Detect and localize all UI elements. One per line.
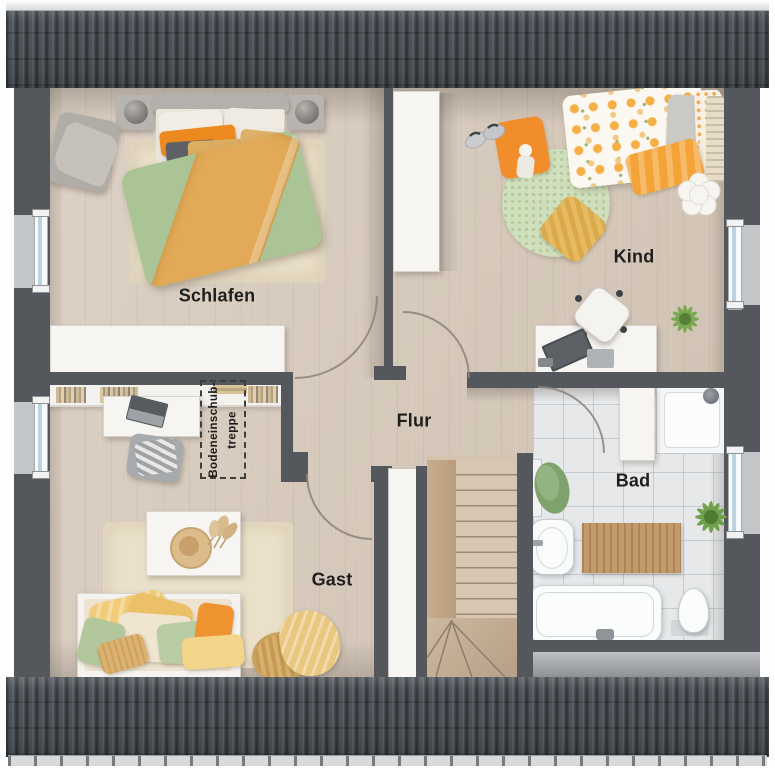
wall-stair-left [374, 466, 388, 677]
room-label-schlafen: Schlafen [179, 286, 256, 307]
attic-hatch-annotation: Bodeneinschub- treppe [200, 380, 246, 479]
sideboard [50, 325, 285, 378]
stair-partition-white [388, 468, 418, 679]
books-cluster-1 [56, 387, 86, 403]
window-sill-tab [32, 209, 50, 217]
kind-wardrobe [393, 91, 440, 272]
room-label-bad: Bad [616, 471, 651, 492]
roof-gutter [8, 755, 767, 766]
bath-cabinet [619, 385, 655, 461]
kind-chair-wheel-1 [575, 295, 582, 302]
bath-mat [582, 523, 681, 573]
roof-bottom [6, 677, 769, 757]
kind-headboard [706, 96, 724, 182]
room-label-kind: Kind [614, 247, 655, 268]
window-glass-schlafen [38, 217, 42, 286]
lamp-right [295, 100, 319, 124]
gast-chair-blanket [134, 437, 178, 476]
shower-head [703, 388, 719, 404]
kind-chair-wheel-2 [616, 290, 623, 297]
outer-wall-right [724, 88, 760, 652]
wall-gast-door-corner [281, 452, 308, 482]
bathtub-faucet [596, 629, 614, 640]
floor-plan: Schlafen Kind Flur Gast Bad Bodeneinschu… [0, 0, 775, 768]
books-cluster-4 [248, 386, 278, 403]
wall-kind-bad [467, 372, 724, 388]
gast-pillow-yellow-3 [181, 634, 245, 670]
kind-monitor [587, 349, 614, 368]
stair-treads [456, 460, 517, 623]
bathtub-basin [536, 592, 654, 637]
room-label-flur: Flur [397, 411, 432, 432]
roof-top [6, 8, 769, 88]
window-sill-tab [32, 396, 50, 404]
wall-schlafen-gast [14, 372, 293, 385]
window-sill-tab [726, 301, 744, 309]
window-sill-tab [726, 446, 744, 454]
stair-stringer [427, 460, 457, 623]
kind-phone [538, 358, 553, 367]
roof-ridge [6, 0, 769, 11]
stair-winders [427, 618, 517, 677]
window-sill-tab [32, 285, 50, 293]
bad-lower-ledge [517, 652, 760, 677]
window-sill-tab [726, 219, 744, 227]
wall-schlafen-kind [384, 88, 393, 378]
window-glass-gast [38, 404, 42, 472]
room-label-gast: Gast [312, 570, 353, 591]
window-glass-bad [732, 454, 736, 532]
wall-stair-right [416, 466, 427, 677]
wall-stub-doors [374, 366, 406, 380]
lamp-left [124, 100, 148, 124]
attic-hatch-line2: treppe [226, 411, 238, 449]
attic-hatch-line1: Bodeneinschub- [208, 382, 220, 478]
wall-bad-bottom [517, 640, 760, 652]
window-glass-kind [732, 227, 736, 303]
kind-doll-body [516, 155, 535, 179]
attic-hatch-label: Bodeneinschub- treppe [205, 382, 242, 478]
sink-basin [536, 527, 568, 569]
toilet [678, 588, 709, 633]
gast-tray-inner [179, 536, 199, 556]
window-sill-tab [32, 471, 50, 479]
window-sill-tab [726, 531, 744, 539]
